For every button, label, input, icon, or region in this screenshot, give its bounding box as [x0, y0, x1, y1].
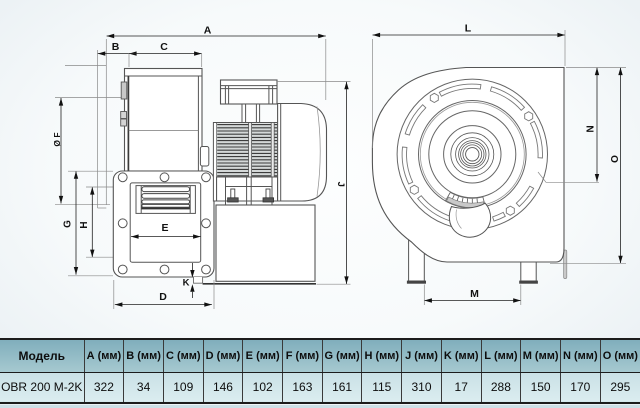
svg-text:N: N [584, 125, 595, 132]
svg-text:E: E [161, 222, 168, 234]
svg-text:C: C [160, 41, 168, 53]
svg-text:G: G [63, 220, 74, 228]
svg-text:K: K [183, 277, 190, 288]
svg-text:Ø F: Ø F [52, 132, 62, 146]
svg-text:J: J [335, 182, 346, 187]
svg-text:B: B [112, 41, 120, 53]
svg-text:A: A [204, 25, 212, 37]
svg-text:H: H [79, 221, 90, 228]
svg-text:O: O [608, 155, 619, 163]
svg-text:M: M [470, 288, 479, 300]
svg-text:D: D [159, 291, 167, 303]
svg-text:L: L [465, 23, 472, 35]
